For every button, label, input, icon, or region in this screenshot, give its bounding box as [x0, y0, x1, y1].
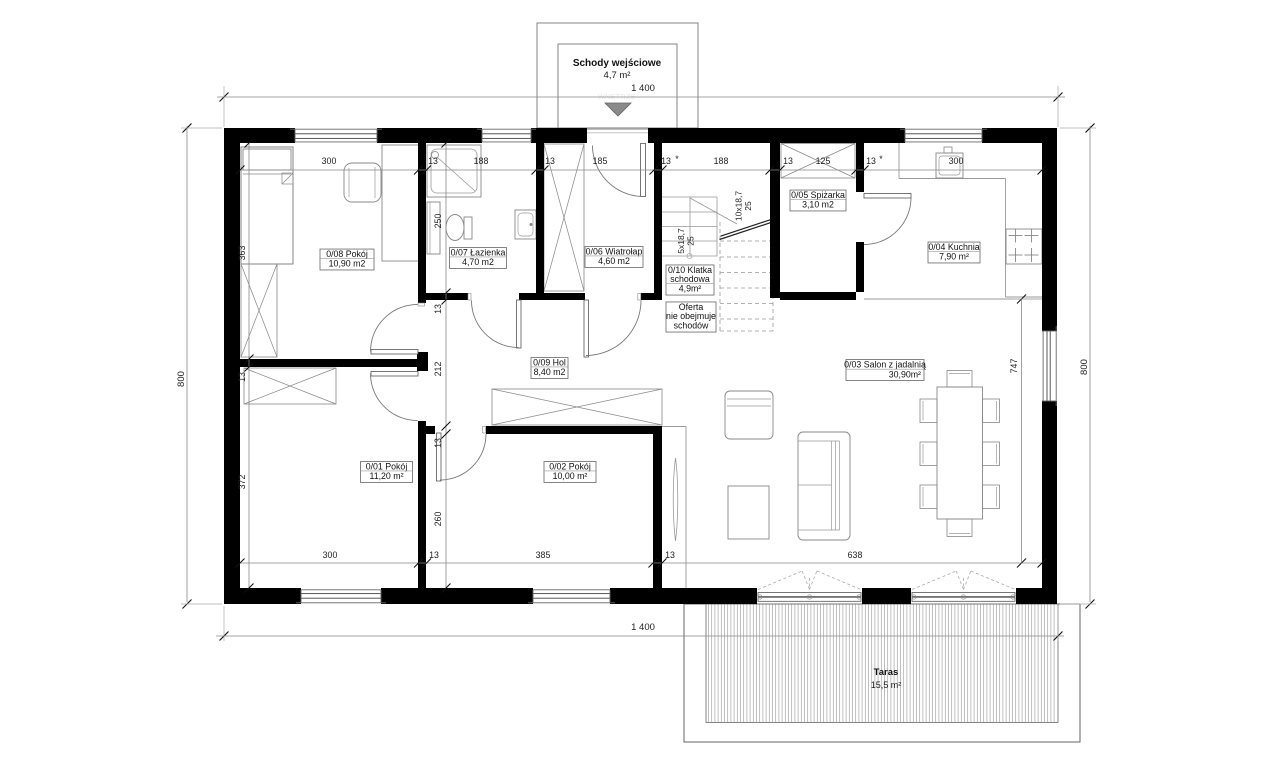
- svg-text:10x18,7: 10x18,7: [734, 191, 744, 222]
- svg-text:13: 13: [433, 304, 443, 314]
- svg-text:300: 300: [949, 156, 964, 166]
- svg-text:638: 638: [848, 550, 863, 560]
- svg-text:13: 13: [428, 156, 438, 166]
- svg-text:747: 747: [1009, 359, 1019, 374]
- svg-text:11,20 m²: 11,20 m²: [369, 471, 403, 481]
- svg-text:260: 260: [433, 512, 443, 527]
- svg-text:8,40 m2: 8,40 m2: [534, 367, 566, 377]
- svg-text:363: 363: [237, 246, 247, 261]
- svg-text:13: 13: [429, 550, 439, 560]
- svg-text:385: 385: [536, 550, 551, 560]
- svg-text:188: 188: [714, 156, 729, 166]
- svg-text:212: 212: [433, 362, 443, 377]
- svg-text:1 400: 1 400: [631, 622, 655, 633]
- svg-text:30,90m²: 30,90m²: [889, 369, 921, 379]
- svg-text:4,7 m²: 4,7 m²: [604, 70, 631, 81]
- svg-text:schodów: schodów: [674, 320, 709, 330]
- svg-text:300: 300: [322, 156, 337, 166]
- svg-text:Schody wejściowe: Schody wejściowe: [573, 58, 662, 69]
- svg-text:*: *: [879, 154, 883, 164]
- svg-text:4,70 m2: 4,70 m2: [462, 257, 494, 267]
- svg-text:7,90 m²: 7,90 m²: [939, 251, 969, 261]
- svg-text:13: 13: [237, 372, 247, 382]
- svg-text:Taras: Taras: [874, 667, 899, 678]
- svg-text:125: 125: [816, 156, 831, 166]
- svg-text:4,9m²: 4,9m²: [679, 283, 702, 293]
- svg-text:250: 250: [433, 214, 443, 229]
- svg-text:13: 13: [665, 550, 675, 560]
- svg-text:13: 13: [661, 156, 671, 166]
- svg-text:1 400: 1 400: [631, 83, 655, 94]
- svg-text:15,5 m²: 15,5 m²: [871, 680, 902, 690]
- svg-text:WNĘTRZE: WNĘTRZE: [598, 94, 636, 101]
- svg-text:4,60 m2: 4,60 m2: [598, 256, 630, 266]
- svg-text:13: 13: [545, 156, 555, 166]
- svg-text:300: 300: [323, 550, 338, 560]
- svg-text:13: 13: [866, 156, 876, 166]
- svg-text:188: 188: [474, 156, 489, 166]
- svg-text:10,00 m²: 10,00 m²: [553, 471, 588, 481]
- svg-text:800: 800: [176, 371, 187, 387]
- svg-text:13: 13: [783, 156, 793, 166]
- svg-text:0/03 Salon z jadalnią: 0/03 Salon z jadalnią: [844, 360, 926, 370]
- svg-text:*: *: [675, 154, 679, 164]
- svg-text:372: 372: [237, 475, 247, 490]
- svg-text:10,90 m2: 10,90 m2: [329, 258, 366, 268]
- svg-text:13: 13: [433, 438, 443, 448]
- svg-text:5x18,7: 5x18,7: [676, 228, 686, 254]
- svg-text:3,10 m2: 3,10 m2: [802, 199, 834, 209]
- svg-text:800: 800: [1079, 359, 1090, 375]
- svg-text:185: 185: [593, 156, 608, 166]
- svg-text:25: 25: [743, 201, 753, 211]
- svg-text:25: 25: [686, 236, 696, 246]
